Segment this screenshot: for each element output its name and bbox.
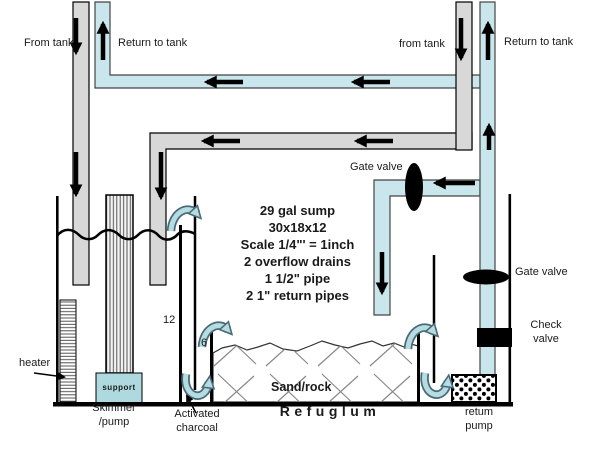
heater-label: heater (19, 357, 50, 370)
skimmer-column (106, 195, 133, 373)
drain-pipe-right (456, 2, 472, 150)
from-tank-right-label: from tank (399, 38, 445, 51)
heater (60, 300, 76, 402)
gate-valve-lower-label: Gate valve (515, 266, 568, 279)
gate-valve-upper (405, 163, 423, 211)
flow-curve-over-baffle-1 (171, 210, 197, 231)
skimmer-pump-label: Skimmer /pump (83, 401, 145, 429)
refugium-label: Refuglum (235, 405, 425, 418)
return-to-tank-left-label: Return to tank (118, 37, 187, 50)
sump-plumbing-diagram: From tank Return to tank from tank Retur… (0, 0, 600, 450)
sump-right-wall (509, 194, 512, 404)
gate-valve-lower (463, 270, 509, 285)
refugium-feed-branch-pipe (374, 180, 480, 315)
sump-spec-block: 29 gal sump 30x18x12 Scale 1/4"' = 1inch… (220, 202, 375, 304)
spec-line-4: 2 overflow drains (220, 253, 375, 270)
return-to-tank-right-label: Return to tank (504, 36, 573, 49)
sand-rock-label: Sand/rock (271, 381, 331, 394)
baffle-height-12-label: 12 (163, 314, 175, 327)
activated-charcoal-label: Activated charcoal (162, 407, 232, 435)
baffle-height-6-label: 6 (201, 337, 207, 350)
flow-curve-under-baffle-2 (186, 374, 209, 396)
spec-line-5: 1 1/2" pipe (220, 270, 375, 287)
check-valve (477, 328, 512, 347)
spec-line-1: 29 gal sump (220, 202, 375, 219)
flow-curve-under-baffle-5 (425, 373, 448, 395)
support-label: support (96, 373, 142, 403)
spec-line-3: Scale 1/4"' = 1inch (220, 236, 375, 253)
gate-valve-upper-label: Gate valve (350, 161, 403, 174)
flow-curve-over-baffle-4 (408, 328, 434, 349)
check-valve-label: Check valve (520, 318, 572, 346)
sump-left-wall (56, 196, 59, 404)
spec-line-2: 30x18x12 (220, 219, 375, 236)
spec-line-6: 2 1" return pipes (220, 287, 375, 304)
return-pump (452, 375, 496, 402)
from-tank-left-label: From tank (24, 37, 74, 50)
return-pump-label: retum pump (448, 405, 510, 433)
